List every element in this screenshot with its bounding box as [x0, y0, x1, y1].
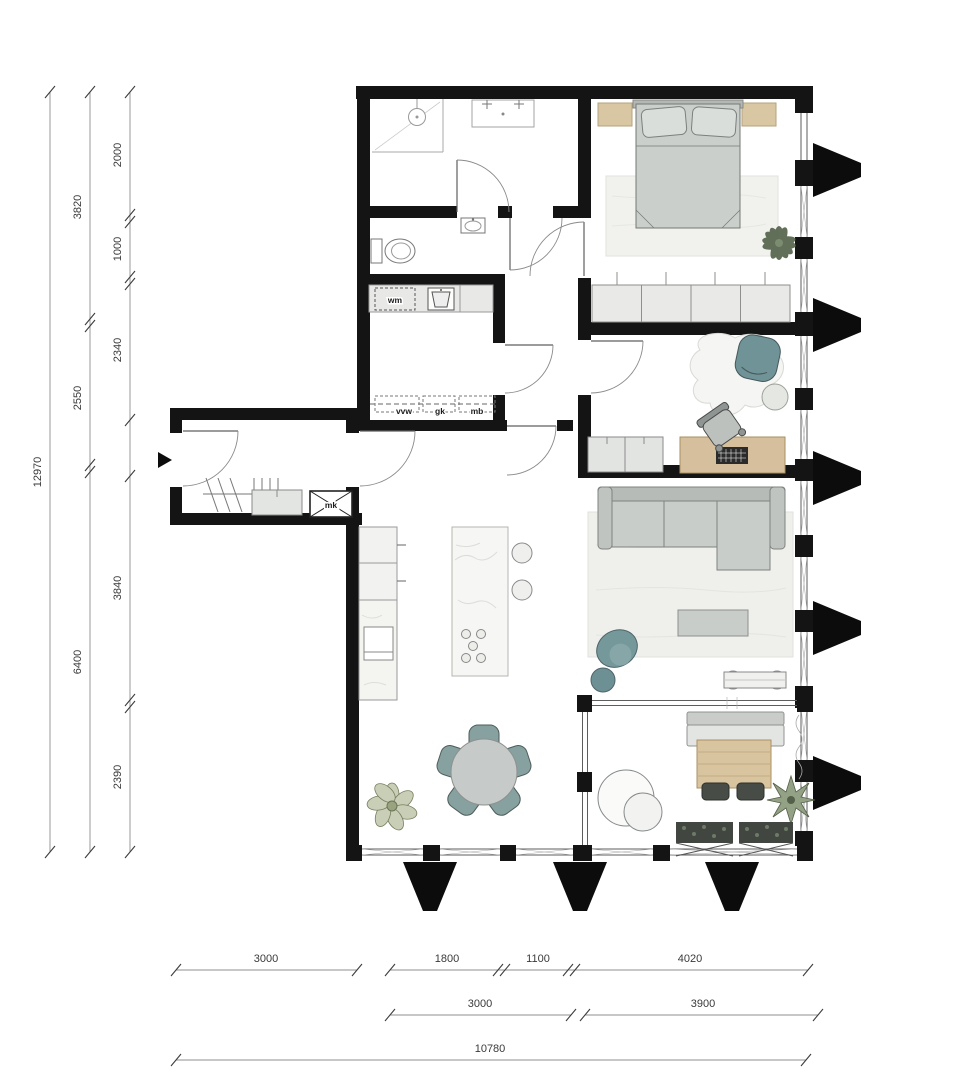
dim-left-total: 12970 — [32, 457, 44, 488]
nightstand-left — [598, 103, 632, 126]
tv-bench — [724, 671, 786, 689]
plant-dining — [366, 780, 418, 833]
dim-bottom-4020: 4020 — [678, 953, 702, 965]
toilet-sink-icon — [461, 218, 485, 233]
window-wall-right — [795, 99, 813, 846]
oven-icon — [364, 627, 393, 660]
kitchen — [359, 527, 532, 700]
hall-to-kitchen-door — [360, 431, 415, 486]
double-bed — [633, 100, 743, 228]
dim-left-in-3: 3840 — [112, 576, 124, 600]
dim-bottom-3000-left: 3000 — [254, 953, 278, 965]
corridor-to-kitchen-door — [507, 426, 556, 475]
arrow-right-3 — [813, 451, 861, 505]
entrance-hall: mk — [203, 478, 352, 517]
arrow-right-1 — [813, 143, 861, 197]
dim-left-mid-0: 3820 — [72, 195, 84, 219]
dining-area — [366, 725, 533, 833]
toilet-icon — [371, 239, 415, 263]
bathroom-vanity — [472, 100, 534, 127]
dim-left-mid-2: 6400 — [72, 650, 84, 674]
balcony-chair — [737, 783, 764, 800]
dim-bottom-total: 10780 — [475, 1043, 506, 1055]
kitchen-island — [452, 527, 508, 676]
dining-table — [451, 739, 517, 805]
bedroom-door — [530, 222, 584, 276]
pouf — [762, 384, 788, 410]
meter-closet: mk — [310, 491, 352, 517]
balcony-chair — [702, 783, 729, 800]
utility-door — [505, 345, 553, 393]
dim-bottom2-3900: 3900 — [691, 998, 715, 1010]
office-cabinet — [588, 437, 663, 472]
dim-left-mid-1: 2550 — [72, 386, 84, 410]
pillow — [641, 106, 687, 138]
utility-label-gk: gk — [435, 406, 445, 416]
kitchen-tall-cabinets — [359, 527, 406, 600]
toilet-room — [371, 218, 485, 263]
balcony-table — [697, 740, 771, 788]
entrance-door — [183, 431, 238, 486]
utility-label-vvw: vvw — [396, 406, 412, 416]
floor-plan-page: 12970 3820 2550 6400 2000 1000 2340 3840… — [0, 0, 975, 1080]
dim-left-in-0: 2000 — [112, 143, 124, 167]
bar-stool — [512, 543, 532, 563]
entrance-arrow — [158, 452, 172, 468]
arrow-right-5 — [813, 756, 861, 810]
bar-stool — [512, 580, 532, 600]
nightstand-right — [742, 103, 776, 126]
arrow-bottom-2 — [553, 862, 607, 911]
dim-bottom-1800: 1800 — [435, 953, 459, 965]
arrow-bottom-3 — [705, 862, 759, 911]
arrow-right-2 — [813, 298, 861, 352]
arrow-bottom-1 — [403, 862, 457, 911]
shower — [372, 99, 443, 152]
dim-left-in-2: 2340 — [112, 338, 124, 362]
balcony — [598, 712, 815, 856]
bathroom-door — [457, 160, 509, 212]
dim-left-in-4: 2390 — [112, 765, 124, 789]
utility-sink-icon — [428, 288, 454, 310]
planter-box — [739, 822, 793, 856]
coffee-table — [678, 610, 748, 636]
ottoman — [591, 668, 615, 692]
hall-cabinet — [252, 490, 302, 515]
bathroom — [372, 99, 534, 152]
kitchen-counter — [359, 600, 397, 700]
plant-balcony-star — [767, 776, 815, 824]
pillow — [691, 106, 737, 137]
washing-machine-label: wm — [387, 295, 403, 305]
arrow-right-4 — [813, 601, 861, 655]
dim-left-in-1: 1000 — [112, 237, 124, 261]
dimension-lines-bottom: 3000 1800 1100 4020 3000 3900 10780 — [171, 953, 823, 1066]
dim-bottom-1100: 1100 — [526, 953, 550, 965]
utility-room: wm vvw gk mb — [369, 285, 497, 416]
floor-plan-drawing: 12970 3820 2550 6400 2000 1000 2340 3840… — [0, 0, 975, 1080]
dim-bottom2-3000: 3000 — [468, 998, 492, 1010]
meter-closet-label: mk — [325, 500, 338, 510]
dimension-lines-left: 12970 3820 2550 6400 2000 1000 2340 3840… — [32, 86, 135, 858]
toilet-door — [510, 218, 562, 270]
office-door — [591, 341, 643, 393]
office-room — [588, 332, 788, 473]
utility-label-mb: mb — [471, 406, 484, 416]
wardrobe — [592, 272, 790, 322]
round-lounger — [598, 770, 662, 831]
